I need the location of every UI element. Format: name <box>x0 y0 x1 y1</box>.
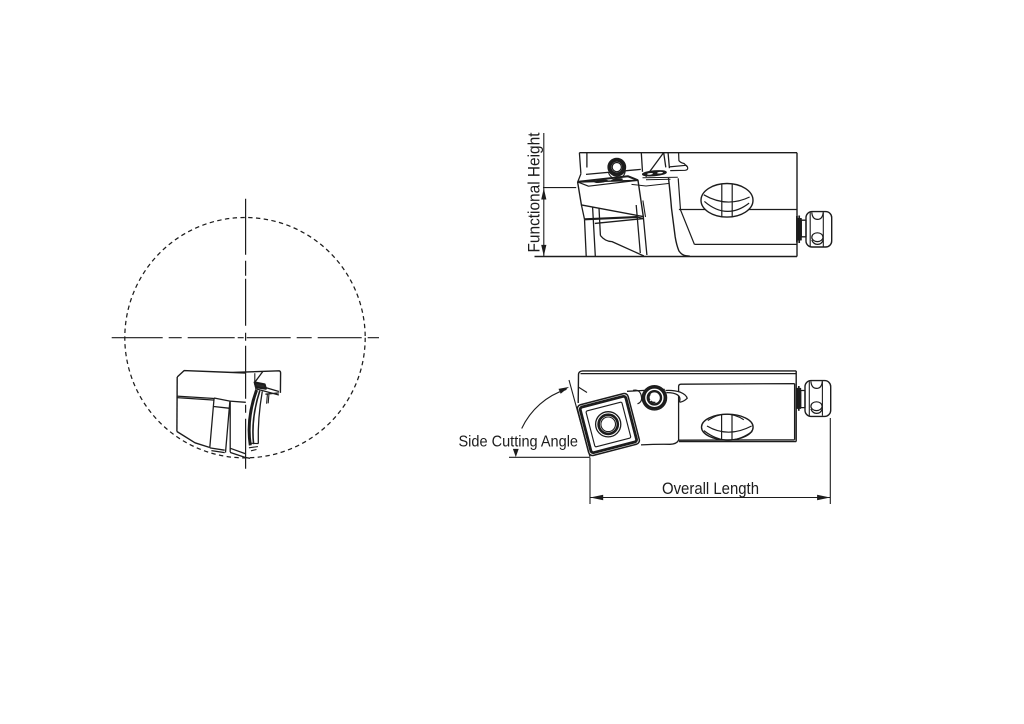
svg-text:Functional Height: Functional Height <box>525 132 544 252</box>
svg-text:Side Cutting Angle: Side Cutting Angle <box>459 433 579 450</box>
svg-text:Overall Length: Overall Length <box>662 479 759 498</box>
